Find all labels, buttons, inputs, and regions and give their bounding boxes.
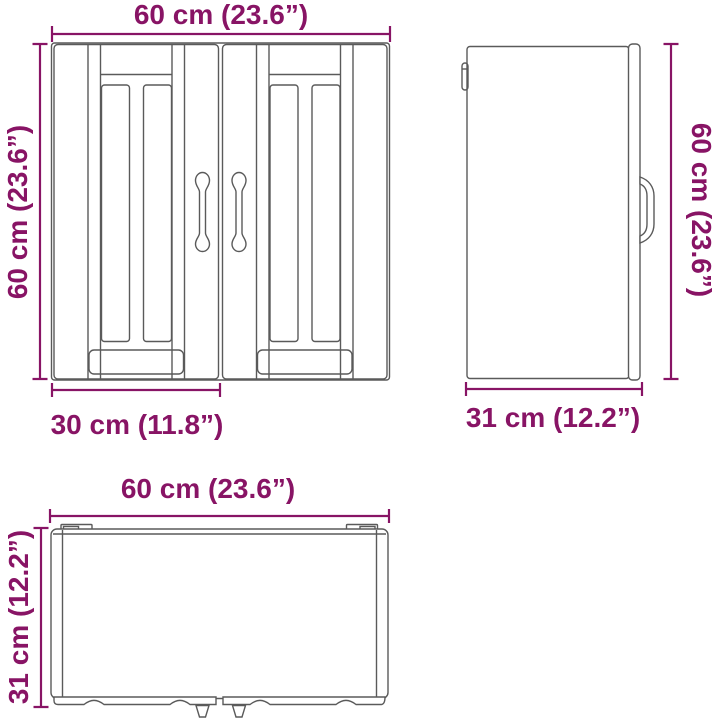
front-view — [52, 43, 390, 380]
line-art — [0, 0, 720, 720]
top-depth-label: 31 cm (12.2”) — [5, 530, 33, 704]
top-depth-dimension-line — [34, 528, 49, 707]
cabinet-body-side — [467, 47, 629, 379]
door-width-dimension-line — [52, 383, 220, 397]
front-left-door — [54, 45, 219, 380]
side-height-dimension-line — [664, 44, 679, 379]
front-height-dimension-line — [33, 44, 48, 379]
top-view — [51, 525, 388, 718]
top-width-label: 60 cm (23.6”) — [121, 475, 295, 503]
side-depth-label: 31 cm (12.2”) — [466, 404, 640, 432]
front-height-label: 60 cm (23.6”) — [4, 125, 32, 299]
side-height-label: 60 cm (23.6”) — [687, 123, 715, 297]
side-door-edge — [629, 44, 641, 380]
front-width-label: 60 cm (23.6”) — [134, 1, 308, 29]
door-width-label: 30 cm (11.8”) — [51, 411, 224, 439]
side-door-handle — [640, 177, 654, 243]
side-depth-dimension-line — [466, 382, 642, 396]
side-view — [462, 44, 654, 380]
top-view-handles — [196, 706, 246, 718]
cabinet-body-top — [51, 529, 388, 699]
dimension-diagram: 60 cm (23.6”) 60 cm (23.6”) 30 cm (11.8”… — [0, 0, 720, 720]
front-right-door — [223, 45, 388, 380]
top-width-dimension-line — [50, 509, 389, 523]
